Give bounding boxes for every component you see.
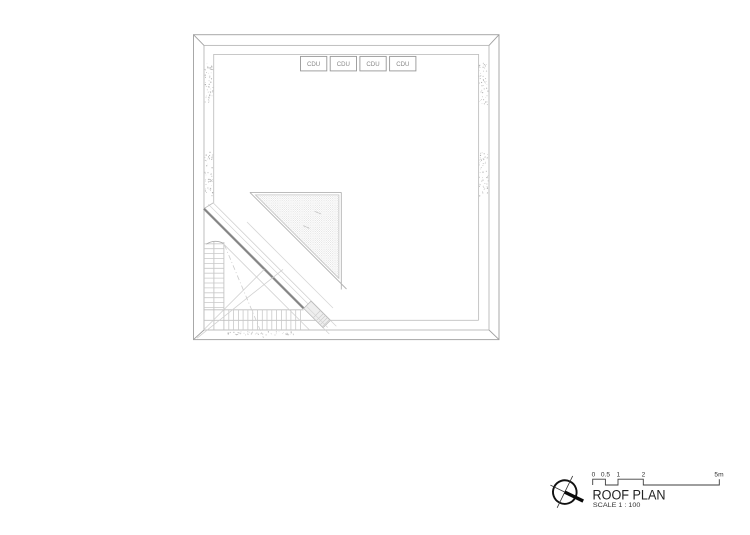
svg-text:CDU: CDU: [337, 61, 350, 68]
svg-text:CDU: CDU: [366, 61, 379, 68]
svg-text:5m: 5m: [714, 472, 724, 479]
svg-text:2: 2: [642, 472, 646, 479]
svg-text:ROOF PLAN: ROOF PLAN: [593, 487, 666, 502]
svg-text:0.5: 0.5: [601, 472, 610, 479]
svg-text:CDU: CDU: [396, 61, 409, 68]
svg-text:CDU: CDU: [307, 61, 320, 68]
svg-text:1: 1: [616, 472, 620, 479]
svg-text:SCALE 1 : 100: SCALE 1 : 100: [593, 502, 641, 509]
svg-text:0: 0: [592, 472, 596, 479]
